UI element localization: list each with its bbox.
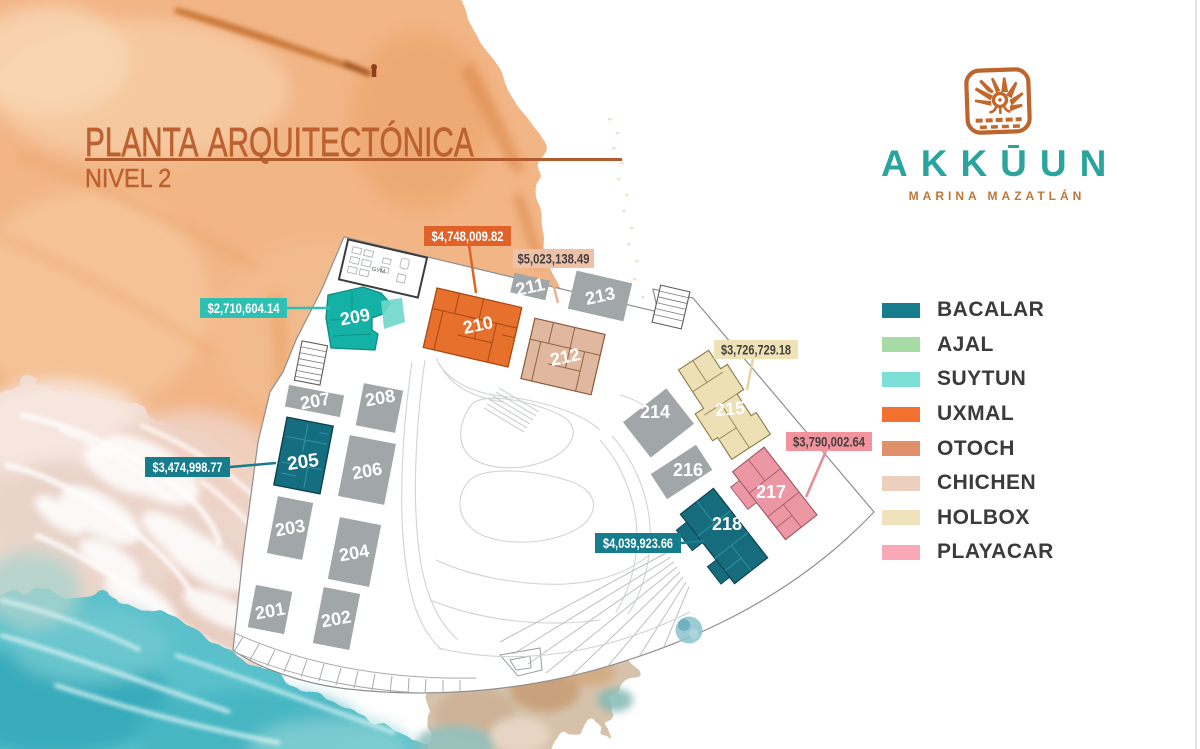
svg-text:$5,023,138.49: $5,023,138.49 <box>518 251 590 267</box>
svg-text:$2,710,604.14: $2,710,604.14 <box>208 300 280 316</box>
svg-text:218: 218 <box>712 514 742 534</box>
svg-text:$3,474,998.77: $3,474,998.77 <box>153 459 223 475</box>
svg-text:$4,039,923.66: $4,039,923.66 <box>603 535 673 551</box>
svg-text:205: 205 <box>286 450 321 475</box>
svg-text:215: 215 <box>714 398 746 421</box>
svg-text:$4,748,009.82: $4,748,009.82 <box>432 228 504 244</box>
svg-text:217: 217 <box>756 482 786 502</box>
svg-text:214: 214 <box>640 402 670 422</box>
svg-text:$3,790,002.64: $3,790,002.64 <box>793 434 865 450</box>
svg-text:$3,726,729.18: $3,726,729.18 <box>721 342 791 358</box>
svg-text:216: 216 <box>673 460 703 480</box>
